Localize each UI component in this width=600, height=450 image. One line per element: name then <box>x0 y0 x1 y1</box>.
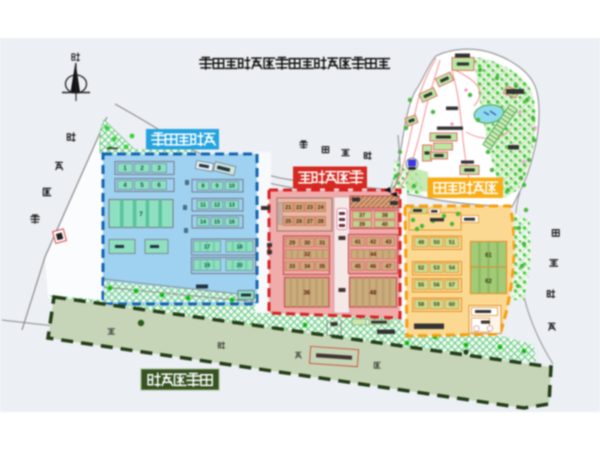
svg-text:19: 19 <box>204 263 210 269</box>
svg-text:34: 34 <box>304 264 311 270</box>
svg-text:21: 21 <box>285 205 291 211</box>
svg-text:30: 30 <box>304 241 310 247</box>
svg-text:9: 9 <box>215 184 218 190</box>
svg-text:27: 27 <box>307 219 313 225</box>
svg-text:43: 43 <box>385 240 391 246</box>
svg-text:62: 62 <box>485 279 492 285</box>
svg-text:33: 33 <box>289 264 295 270</box>
svg-text:44: 44 <box>370 252 377 258</box>
svg-text:16: 16 <box>229 220 235 226</box>
svg-text:35: 35 <box>319 264 325 270</box>
svg-text:17: 17 <box>204 245 210 251</box>
svg-text:54: 54 <box>449 266 456 272</box>
svg-text:57: 57 <box>449 283 455 289</box>
svg-text:55: 55 <box>418 283 424 289</box>
svg-text:51: 51 <box>449 240 455 246</box>
svg-text:31: 31 <box>319 241 325 247</box>
svg-text:20: 20 <box>236 263 242 269</box>
svg-text:53: 53 <box>434 266 440 272</box>
svg-text:56: 56 <box>434 283 440 289</box>
svg-text:28: 28 <box>318 219 324 225</box>
svg-text:23: 23 <box>307 205 313 211</box>
svg-text:37: 37 <box>359 213 365 219</box>
svg-text:14: 14 <box>200 220 207 226</box>
svg-text:11: 11 <box>200 203 206 209</box>
svg-text:36: 36 <box>303 290 310 296</box>
svg-text:39: 39 <box>359 222 365 228</box>
svg-text:61: 61 <box>485 253 492 259</box>
svg-text:29: 29 <box>289 241 295 247</box>
svg-text:12: 12 <box>214 203 220 209</box>
svg-text:50: 50 <box>434 240 440 246</box>
svg-text:22: 22 <box>296 205 302 211</box>
svg-text:42: 42 <box>370 240 376 246</box>
svg-text:40: 40 <box>382 222 388 228</box>
svg-text:45: 45 <box>355 264 361 270</box>
svg-text:32: 32 <box>304 252 310 258</box>
svg-text:47: 47 <box>385 264 391 270</box>
svg-text:15: 15 <box>214 220 220 226</box>
svg-text:49: 49 <box>418 240 424 246</box>
svg-text:46: 46 <box>370 264 376 270</box>
svg-text:52: 52 <box>418 266 424 272</box>
svg-text:58: 58 <box>418 302 424 308</box>
svg-text:7: 7 <box>139 211 143 218</box>
svg-text:10: 10 <box>229 184 235 190</box>
svg-text:24: 24 <box>318 205 325 211</box>
svg-text:59: 59 <box>434 302 440 308</box>
svg-text:26: 26 <box>296 219 302 225</box>
svg-text:13: 13 <box>229 203 235 209</box>
svg-text:48: 48 <box>370 290 377 296</box>
svg-text:25: 25 <box>285 219 291 225</box>
svg-text:8: 8 <box>201 184 204 190</box>
svg-text:41: 41 <box>355 240 361 246</box>
svg-text:60: 60 <box>449 302 455 308</box>
svg-text:38: 38 <box>382 213 388 219</box>
svg-text:18: 18 <box>236 245 242 251</box>
